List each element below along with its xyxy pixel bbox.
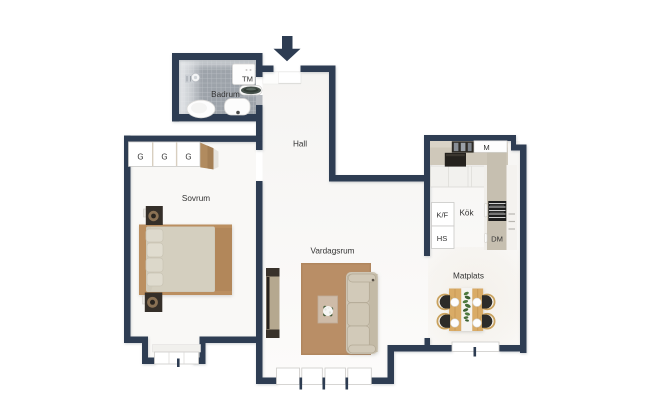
svg-text:Hall: Hall — [293, 140, 307, 149]
svg-text:G: G — [185, 152, 191, 161]
svg-text:DM: DM — [491, 234, 503, 243]
svg-text:Sovrum: Sovrum — [182, 194, 210, 203]
svg-text:G: G — [161, 152, 167, 161]
svg-text:Vardagsrum: Vardagsrum — [311, 247, 355, 256]
svg-text:Kök: Kök — [459, 209, 474, 218]
svg-text:Badrum: Badrum — [211, 90, 240, 99]
svg-text:M: M — [483, 143, 489, 152]
svg-text:Matplats: Matplats — [453, 272, 484, 281]
svg-text:K/F: K/F — [436, 210, 448, 219]
svg-text:G: G — [137, 152, 143, 161]
svg-text:HS: HS — [437, 234, 448, 243]
svg-text:TM: TM — [242, 75, 253, 84]
